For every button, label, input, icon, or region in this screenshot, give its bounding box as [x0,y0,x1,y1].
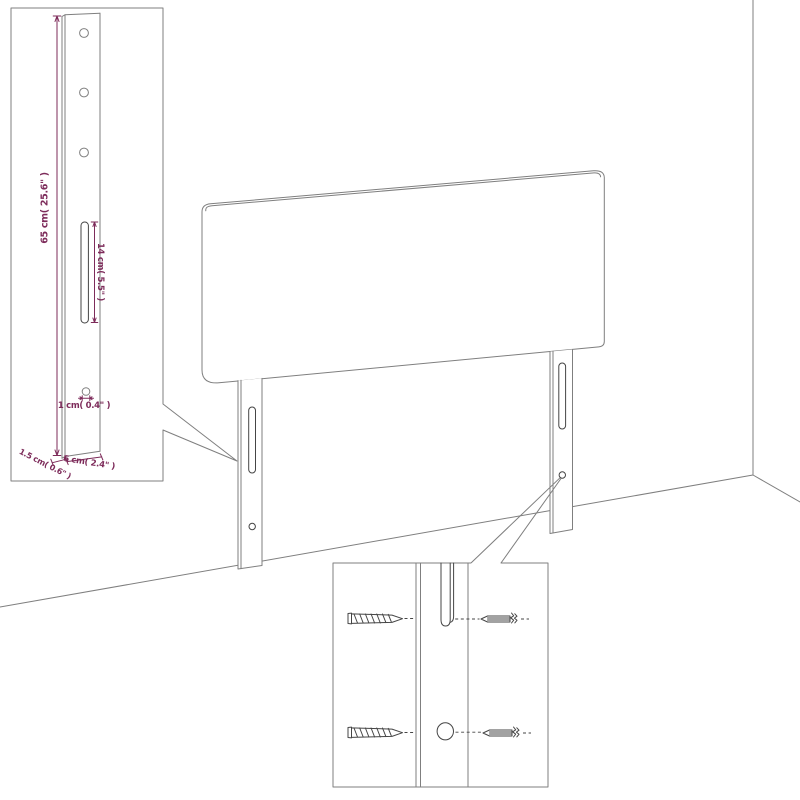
panel-face [202,171,604,383]
callout-line [471,478,560,563]
headboard-panel [202,171,604,383]
floor-line-right [753,475,800,502]
dimension-label-slot: 14 cm( 5.5" ) [95,243,105,301]
diagram-canvas [0,0,800,800]
left-mounting-leg [238,378,262,569]
right-mounting-leg [550,350,573,534]
dimension-label-height: 65 cm( 25.6" ) [40,172,51,244]
headboard-assembly-diagram: { "colors": { "background": "#ffffff", "… [0,0,800,800]
screw-detail-inset [333,563,548,787]
dimension-label-hole: 1 cm( 0.4" ) [58,401,110,411]
